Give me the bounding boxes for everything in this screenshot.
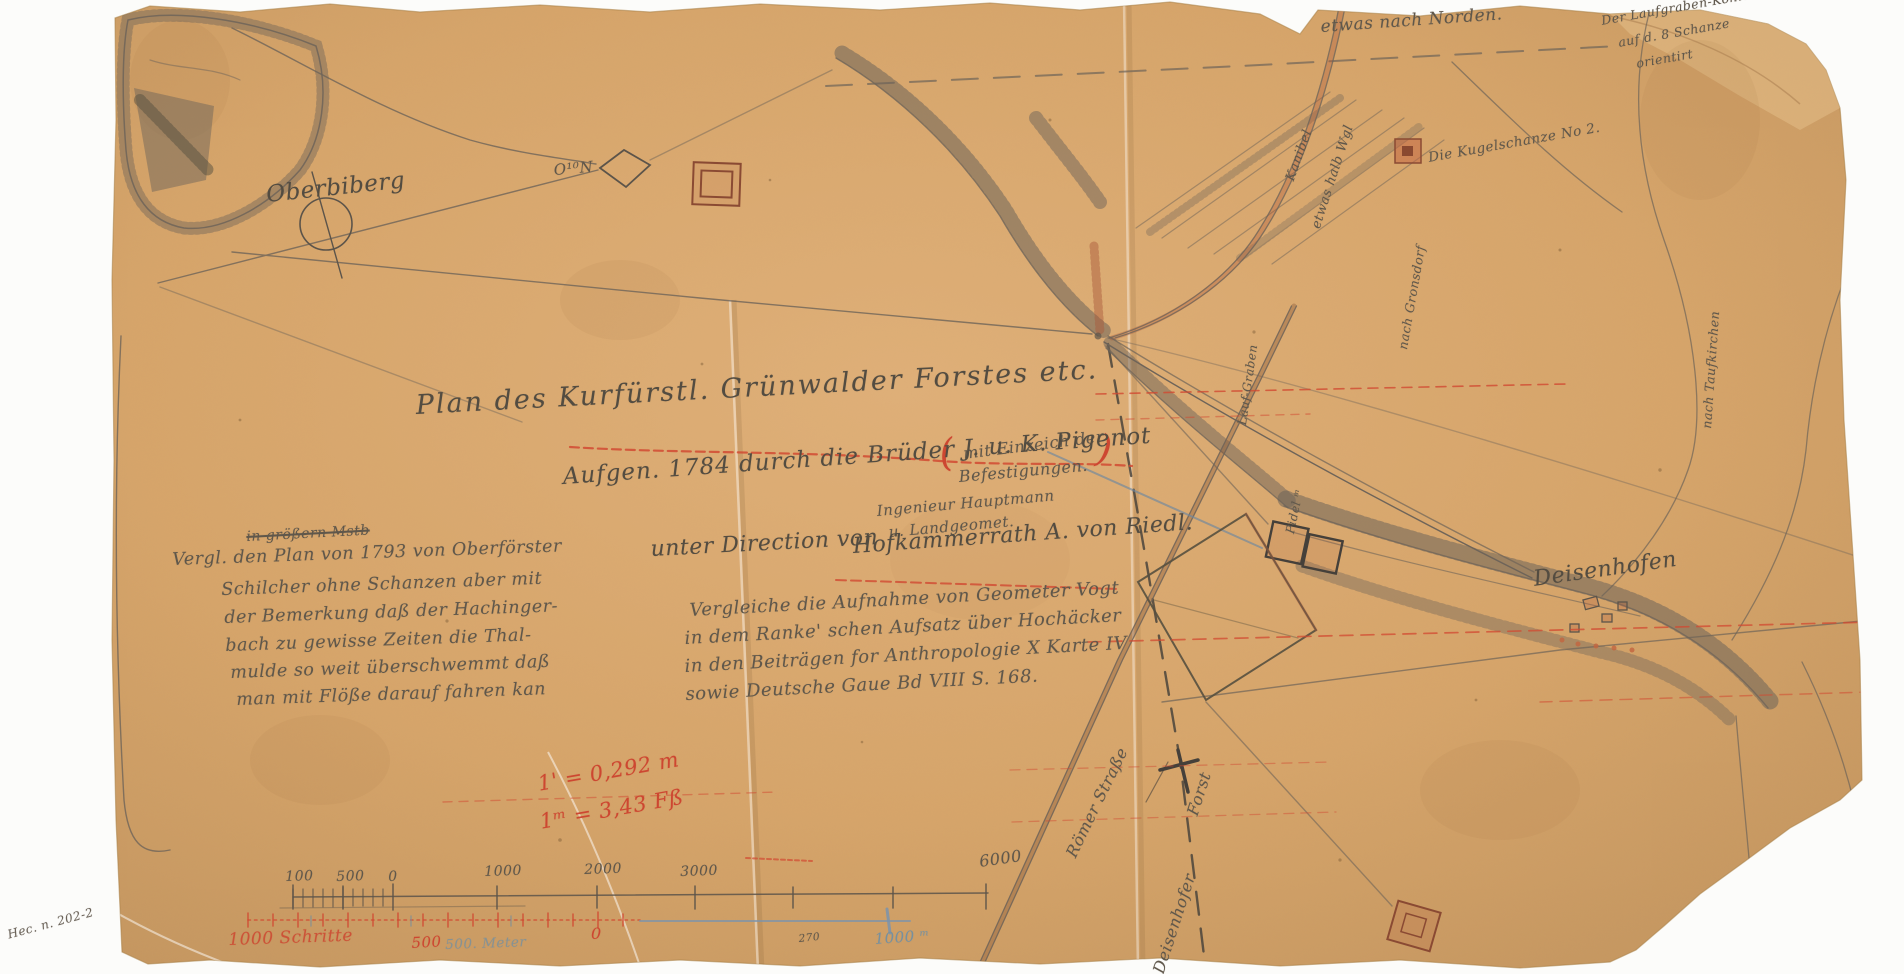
scale-tick-label: 0 [388, 869, 398, 885]
place-oberbiberg: Oberbiberg [265, 167, 406, 207]
label-forst: Forst [1183, 770, 1215, 818]
handwritten-labels: Plan des Kurfürstl. Grünwalder Forstes e… [0, 0, 1904, 974]
scanned-map-page: Plan des Kurfürstl. Grünwalder Forstes e… [0, 0, 1904, 974]
map-title-line5: unter Direction von [650, 525, 879, 562]
scale-blue-right-label: 1000 ᵐ [874, 926, 930, 948]
note-nach-norden: etwas nach Norden. [1320, 4, 1503, 37]
label-deisenhofer: Deisenhofer [1149, 871, 1199, 974]
note-kugelschanze: Die Kugelschanze No 2. [1427, 120, 1601, 166]
note-1793-struck: in größern Mstb [246, 523, 370, 545]
note-1793-line: Schilcher ohne Schanzen aber mit [221, 569, 542, 600]
scale-tick-label: 6000 [978, 846, 1023, 871]
note-weg: etwas halb Wgl [1309, 123, 1357, 231]
note-1793-line: bach zu gewisse Zeiten die Thal- [225, 625, 532, 656]
map-title-line3: Ingenieur Hauptmann [876, 486, 1055, 519]
top-right-note-line: orientirt [1635, 46, 1694, 71]
archival-note: Hec. n. 202-2 [6, 905, 95, 941]
scale-tick-label: 100 [285, 868, 314, 885]
scale-tick-label: 500 [336, 868, 365, 885]
scale-tick-label: 1000 [484, 863, 522, 880]
map-title-line1: Plan des Kurfürstl. Grünwalder Forstes e… [415, 354, 1099, 421]
note-1793-line: der Bemerkung daß der Hachinger- [224, 596, 558, 628]
scale-red-left-label: 1000 Schritte [228, 926, 353, 950]
note-1793-line: man mit Flöße darauf fahren kan [236, 679, 546, 710]
scale-red-zero: 0 [591, 924, 602, 943]
scale-tick-label: 3000 [680, 863, 718, 880]
scale-red-mid-label: 500 [411, 932, 442, 952]
label-lauf-graben: Lauf-Graben [1235, 343, 1260, 426]
note-1793-line: Vergl. den Plan von 1793 von Oberförster [172, 536, 562, 570]
scale-blue-mid-label: 500. Meter [445, 934, 527, 953]
label-pidel: Pidel ᵐ [1283, 488, 1306, 535]
label-nach-gronsdorf: nach Gronsdorf [1395, 244, 1428, 351]
marker-o10n-label: O¹⁰N [553, 158, 594, 179]
scale-tick-label: 2000 [584, 861, 622, 878]
label-nach-taufkirchen: nach Taufkirchen [1699, 310, 1722, 429]
note-1793-line: mulde so weit überschwemmt daß [230, 652, 550, 683]
note-kanal: Kanibel [1283, 128, 1315, 184]
map-title-line2: Aufgen. 1784 durch die Brüder J. u. K. P… [562, 423, 1152, 490]
place-deisenhofen: Deisenhofen [1532, 547, 1678, 592]
scale-small-pencil: 270 [798, 931, 821, 945]
label-roemer-strasse: Römer Straße [1062, 744, 1132, 860]
